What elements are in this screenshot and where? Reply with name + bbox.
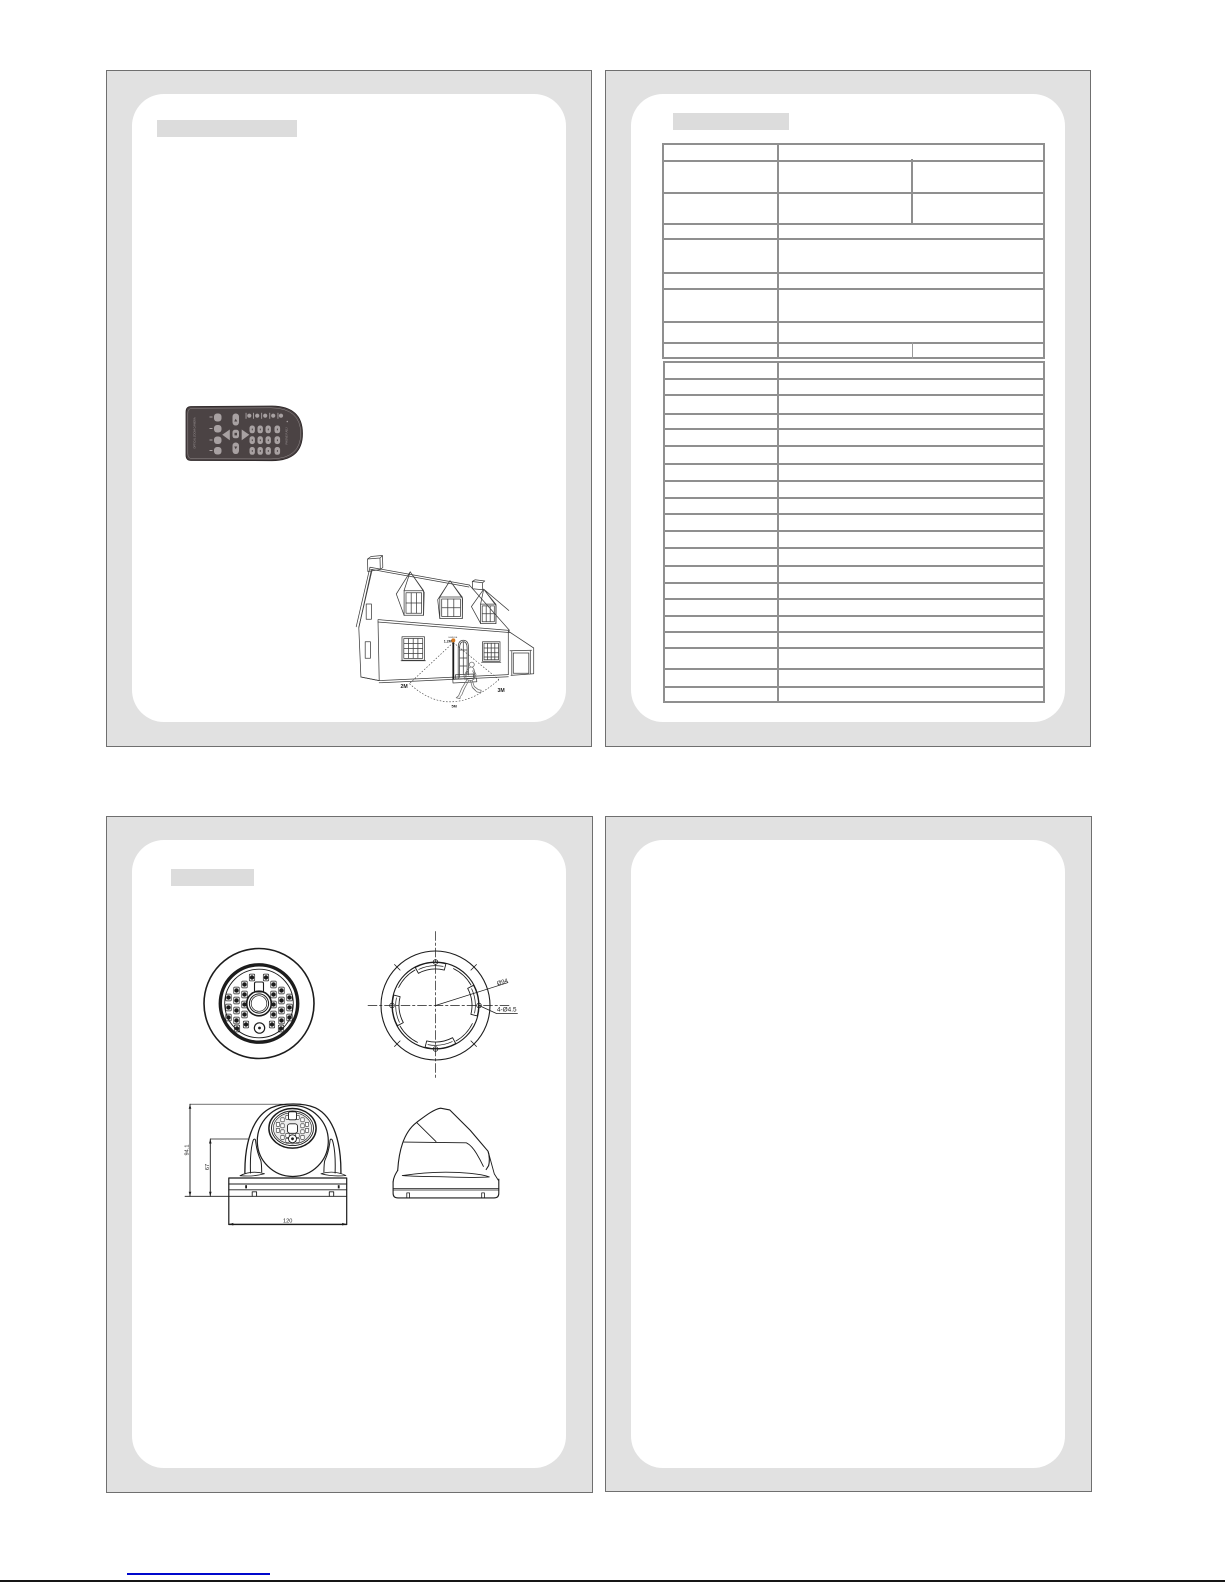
svg-text:4-Ø4.5: 4-Ø4.5: [497, 1007, 517, 1014]
svg-text:5M: 5M: [452, 705, 457, 709]
svg-text:OPTICAL ZOOM CAMERA: OPTICAL ZOOM CAMERA: [193, 417, 197, 449]
svg-text:CAMERA: CAMERA: [448, 636, 458, 639]
svg-text:94.1: 94.1: [185, 1145, 191, 1156]
svg-text:Ø94: Ø94: [496, 978, 509, 987]
svg-text:120: 120: [283, 1219, 292, 1225]
svg-text:2M: 2M: [401, 684, 408, 690]
svg-text:67: 67: [205, 1164, 211, 1170]
svg-text:1.2M: 1.2M: [444, 639, 452, 643]
svg-text:3M: 3M: [498, 688, 505, 694]
svg-text:PHONE P.ADJ: PHONE P.ADJ: [285, 427, 289, 445]
